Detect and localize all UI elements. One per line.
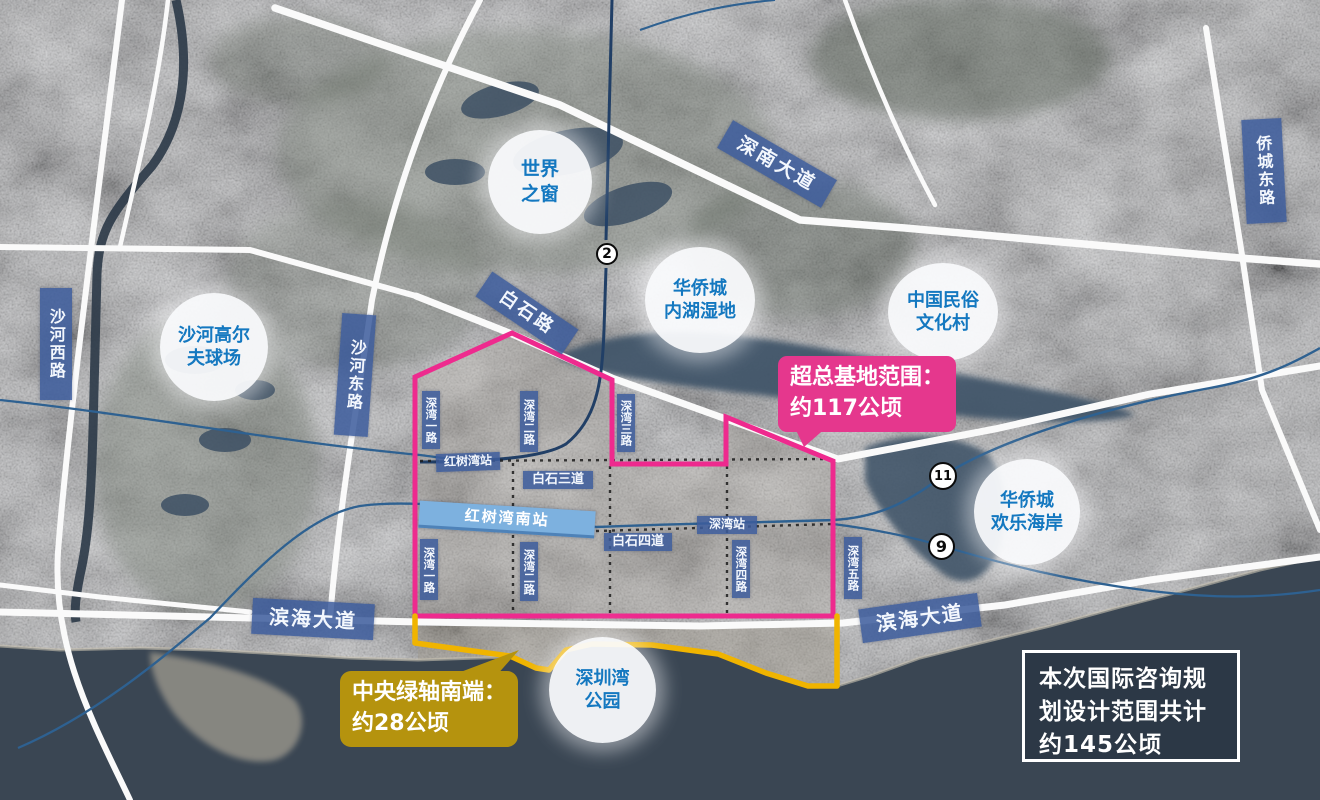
street-label-shenwan-3: 深湾三路 (617, 394, 635, 452)
station-label-hongshuwan: 红树湾站 (436, 452, 501, 472)
summary-line: 划设计范围共计 (1039, 696, 1223, 729)
callout-base-area-title: 超总基地范围： (790, 363, 944, 394)
landmark-label-line: 深圳湾 (576, 667, 630, 690)
street-label-shenwan-1-south: 深湾一路 (420, 539, 438, 600)
street-label-shenwan-4: 深湾四路 (732, 540, 750, 598)
landmark-label-line: 内湖湿地 (664, 300, 736, 323)
station-label-shenwan: 深湾站 (697, 516, 757, 534)
landmark-label-line: 中国民俗 (907, 289, 979, 312)
summary-box: 本次国际咨询规 划设计范围共计 约145公顷 (1022, 650, 1240, 762)
road-label-baishi-3rd: 白石三道 (523, 471, 593, 489)
landmark-label-line: 公园 (585, 690, 621, 713)
landmark-oct-wetland: 华侨城 内湖湿地 (645, 247, 755, 353)
metro-badge-line-9: 9 (928, 533, 955, 560)
landmark-china-folk-culture-village: 中国民俗 文化村 (888, 263, 998, 361)
landmark-window-of-the-world: 世界 之窗 (488, 130, 592, 234)
landmark-label-line: 华侨城 (673, 277, 727, 300)
landmark-label-line: 夫球场 (187, 347, 241, 370)
landmark-label-line: 文化村 (916, 312, 970, 335)
landmark-oct-harbor: 华侨城 欢乐海岸 (974, 459, 1080, 565)
landmark-shahe-golf-club: 沙河高尔 夫球场 (160, 293, 268, 401)
landmark-label-line: 华侨城 (1000, 489, 1054, 512)
street-label-shenwan-2-north: 深湾二路 (520, 391, 538, 452)
road-label-shahe-west: 沙河西路 (40, 288, 72, 400)
landmark-shenzhen-bay-park: 深圳湾 公园 (549, 637, 656, 743)
metro-badge-line-11: 11 (929, 462, 957, 490)
road-label-baishi-4th: 白石四道 (604, 533, 672, 551)
summary-line: 本次国际咨询规 (1039, 663, 1223, 696)
road-label-qiaocheng-east: 侨城东路 (1241, 118, 1286, 224)
callout-green-axis-value: 约28公顷 (352, 709, 506, 740)
callout-base-area-value: 约117公顷 (790, 394, 944, 425)
callout-base-area: 超总基地范围： 约117公顷 (778, 356, 956, 432)
summary-line: 约145公顷 (1039, 729, 1223, 762)
street-label-shenwan-2-south: 深湾二路 (520, 542, 538, 601)
road-label-binhai-avenue-west: 滨海大道 (251, 598, 375, 640)
street-label-shenwan-1-north: 深湾一路 (422, 391, 440, 449)
landmark-label-line: 世界 (521, 157, 559, 182)
street-label-shenwan-5: 深湾五路 (844, 537, 862, 599)
landmark-label-line: 之窗 (521, 182, 559, 207)
planning-satellite-map: 沙河高尔 夫球场 世界 之窗 华侨城 内湖湿地 中国民俗 文化村 华侨城 欢乐海… (0, 0, 1320, 800)
landmark-label-line: 欢乐海岸 (991, 512, 1063, 535)
callout-green-axis-title: 中央绿轴南端： (352, 678, 506, 709)
landmark-label-line: 沙河高尔 (178, 324, 250, 347)
metro-badge-line-2: 2 (596, 243, 618, 265)
callout-green-axis: 中央绿轴南端： 约28公顷 (340, 671, 518, 747)
